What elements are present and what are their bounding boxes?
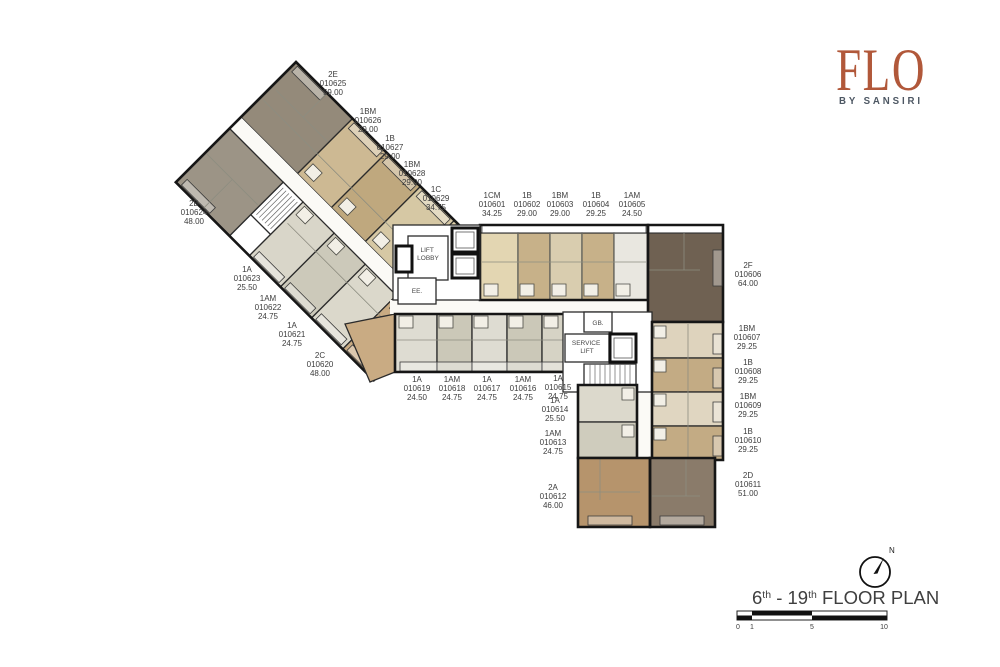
brand-logo: FLO BY SANSIRI — [836, 37, 926, 107]
unit-label-010604: 1B01060429.25 — [583, 191, 610, 218]
unit-label-010628: 1BM01062829.00 — [399, 160, 426, 187]
scale-tick-5: 5 — [810, 624, 814, 631]
unit-label-010611: 2D01061151.00 — [735, 471, 762, 498]
scale-tick-1: 1 — [750, 624, 754, 631]
scale-seg-bottom — [812, 616, 887, 621]
unit-label-010602: 1B01060229.00 — [514, 191, 541, 218]
logo-tagline: BY SANSIRI — [839, 96, 923, 107]
floor-plan-canvas: LIFT LOBBY EE. GB. SERVICE LIFT 1CM01060… — [0, 0, 1000, 667]
unit-label-010608: 1B01060829.25 — [735, 358, 762, 385]
logo-flo-text: FLO — [836, 37, 926, 103]
unit-label-010619: 1A01061924.50 — [404, 375, 431, 402]
scale-tick-0: 0 — [736, 624, 740, 631]
unit-label-010621: 1A01062124.75 — [279, 321, 306, 348]
unit-label-010618: 1AM01061824.75 — [439, 375, 466, 402]
lift-shaft-3 — [396, 246, 412, 272]
unit-label-010622: 1AM01062224.75 — [255, 294, 282, 321]
unit-label-010612: 2A01061246.00 — [540, 483, 567, 510]
unit-label-010606: 2F01060664.00 — [735, 261, 762, 288]
unit-label-010623: 1A01062325.50 — [234, 265, 261, 292]
scale-seg-left — [737, 616, 752, 621]
north-label: N — [889, 546, 895, 555]
unit-label-010626: 1BM01062629.00 — [355, 107, 382, 134]
unit-label-010613: 1AM01061324.75 — [540, 429, 567, 456]
unit-label-010625: 2E01062559.00 — [320, 70, 347, 97]
plan-title: 6th - 19th FLOOR PLAN — [752, 587, 939, 608]
unit-label-010607: 1BM01060729.25 — [734, 324, 761, 351]
bottom-balcony-strip — [400, 362, 584, 371]
scale-bar: 0 1 5 10 — [736, 611, 888, 631]
unit-label-010601: 1CM01060134.25 — [479, 191, 506, 218]
north-arrow: N — [860, 546, 895, 587]
unit-label-010620: 2C01062048.00 — [307, 351, 334, 378]
scale-seg-top — [752, 611, 812, 616]
unit-label-010603: 1BM01060329.00 — [547, 191, 574, 218]
unit-label-010627: 1B01062729.00 — [377, 134, 404, 161]
unit-label-010617: 1A01061724.75 — [474, 375, 501, 402]
unit-label-010610: 1B01061029.25 — [735, 427, 762, 454]
unit-label-010616: 1AM01061624.75 — [510, 375, 537, 402]
floor-plan-page: LIFT LOBBY EE. GB. SERVICE LIFT 1CM01060… — [0, 0, 1000, 667]
unit-label-010609: 1BM01060929.25 — [735, 392, 762, 419]
unit-2F-010606-shape — [648, 233, 723, 322]
unit-label-010605: 1AM01060524.50 — [619, 191, 646, 218]
gb-label: GB. — [592, 320, 603, 327]
unit-label-010629: 1C01062934.75 — [423, 185, 450, 212]
ee-label: EE. — [412, 288, 423, 295]
scale-tick-10: 10 — [880, 624, 888, 631]
